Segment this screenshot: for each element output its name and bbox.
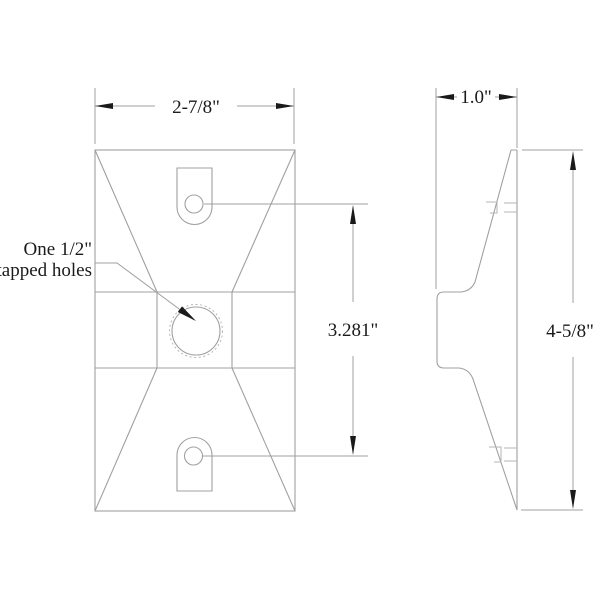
arrowhead-right-icon — [276, 103, 294, 109]
bevel-bottom-left-line — [95, 368, 157, 511]
side-bottom-hole-detail — [489, 447, 517, 462]
dim-depth-text: 1.0" — [460, 87, 492, 108]
arrowhead-down-icon — [350, 436, 356, 455]
note-text-line1: One 1/2" — [24, 239, 92, 260]
arrowhead-up-icon — [350, 205, 356, 224]
technical-drawing: One 1/2" tapped holes 2-7/8" 3.281" — [0, 0, 600, 600]
dim-hole-spacing: 3.281" — [203, 204, 378, 456]
side-profile — [437, 150, 517, 510]
arrowhead-left-icon — [95, 103, 113, 109]
bottom-mounting-tab — [177, 438, 212, 492]
dim-front-width: 2-7/8" — [95, 88, 294, 144]
note-text-line2: tapped holes — [0, 260, 92, 281]
tapped-hole-thread-circle — [170, 305, 223, 358]
bevel-top-left-line — [95, 150, 157, 292]
arrowhead-up-icon — [570, 151, 576, 170]
bottom-mounting-hole — [185, 447, 203, 465]
top-mounting-hole — [185, 195, 203, 213]
bevel-bottom-right-line — [232, 368, 295, 511]
dim-height: 4-5/8" — [521, 150, 594, 510]
dim-depth: 1.0" — [436, 87, 517, 289]
bottom-hole-recess-step — [489, 447, 501, 462]
arrowhead-left-icon — [436, 94, 454, 100]
dim-hole-spacing-text: 3.281" — [328, 320, 379, 341]
drawing-canvas: One 1/2" tapped holes 2-7/8" 3.281" — [0, 0, 600, 600]
arrowhead-down-icon — [570, 490, 576, 509]
dim-front-width-text: 2-7/8" — [172, 97, 220, 118]
dim-height-text: 4-5/8" — [546, 321, 594, 342]
tapped-hole-circle — [172, 307, 220, 355]
arrowhead-right-icon — [499, 94, 517, 100]
side-top-hole-detail — [486, 202, 517, 213]
side-view — [437, 150, 517, 510]
top-mounting-tab — [177, 168, 212, 225]
bevel-top-right-line — [232, 150, 295, 292]
